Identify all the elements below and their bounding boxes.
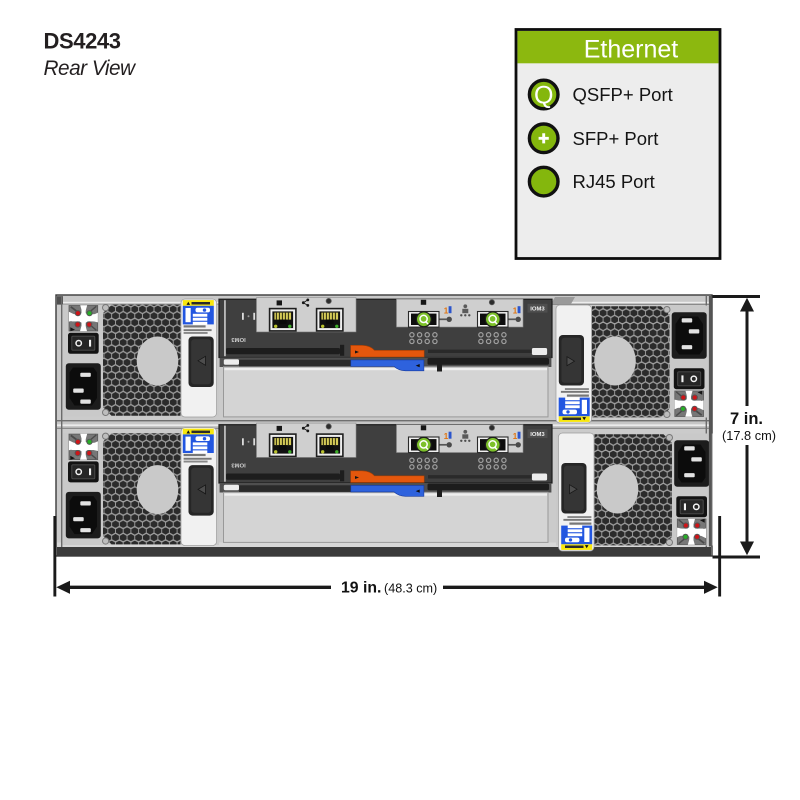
svg-text:(48.3 cm): (48.3 cm) xyxy=(384,582,437,596)
svg-text:IOM3: IOM3 xyxy=(231,336,246,342)
svg-text:QSFP+ Port: QSFP+ Port xyxy=(573,84,673,105)
svg-text:1: 1 xyxy=(444,306,449,315)
svg-text:Rear View: Rear View xyxy=(44,57,138,80)
svg-text:Q: Q xyxy=(534,82,553,110)
svg-text:(17.8 cm): (17.8 cm) xyxy=(722,428,776,443)
svg-text:SFP+ Port: SFP+ Port xyxy=(573,128,659,149)
svg-text:RJ45 Port: RJ45 Port xyxy=(573,171,655,192)
svg-text:7 in.: 7 in. xyxy=(730,410,763,428)
svg-text:Ethernet: Ethernet xyxy=(584,36,679,64)
svg-text:1: 1 xyxy=(513,306,518,315)
svg-text:DS4243: DS4243 xyxy=(44,29,121,54)
svg-text:19 in.: 19 in. xyxy=(341,580,381,597)
svg-text:IOM3: IOM3 xyxy=(530,306,545,312)
